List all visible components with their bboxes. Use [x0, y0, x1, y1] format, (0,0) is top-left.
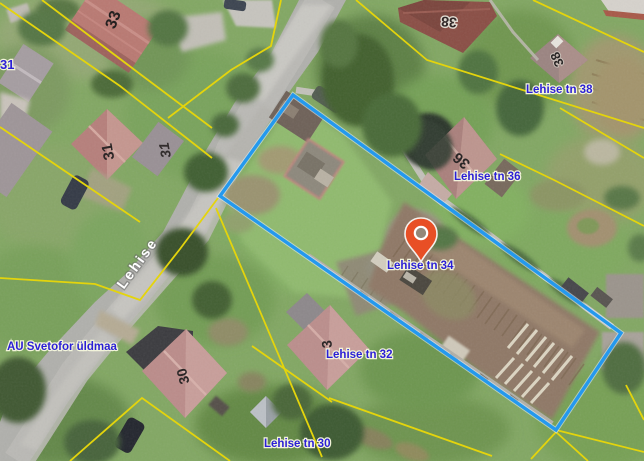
svg-text:31: 31 [0, 57, 14, 72]
svg-text:Lehise tn 32: Lehise tn 32 [326, 349, 392, 361]
svg-text:Lehise tn 30: Lehise tn 30 [264, 438, 330, 450]
svg-text:Lehise tn 38: Lehise tn 38 [526, 84, 593, 96]
svg-text:AU Svetofor üldmaa: AU Svetofor üldmaa [7, 341, 118, 353]
svg-text:Lehise tn 36: Lehise tn 36 [454, 171, 520, 183]
